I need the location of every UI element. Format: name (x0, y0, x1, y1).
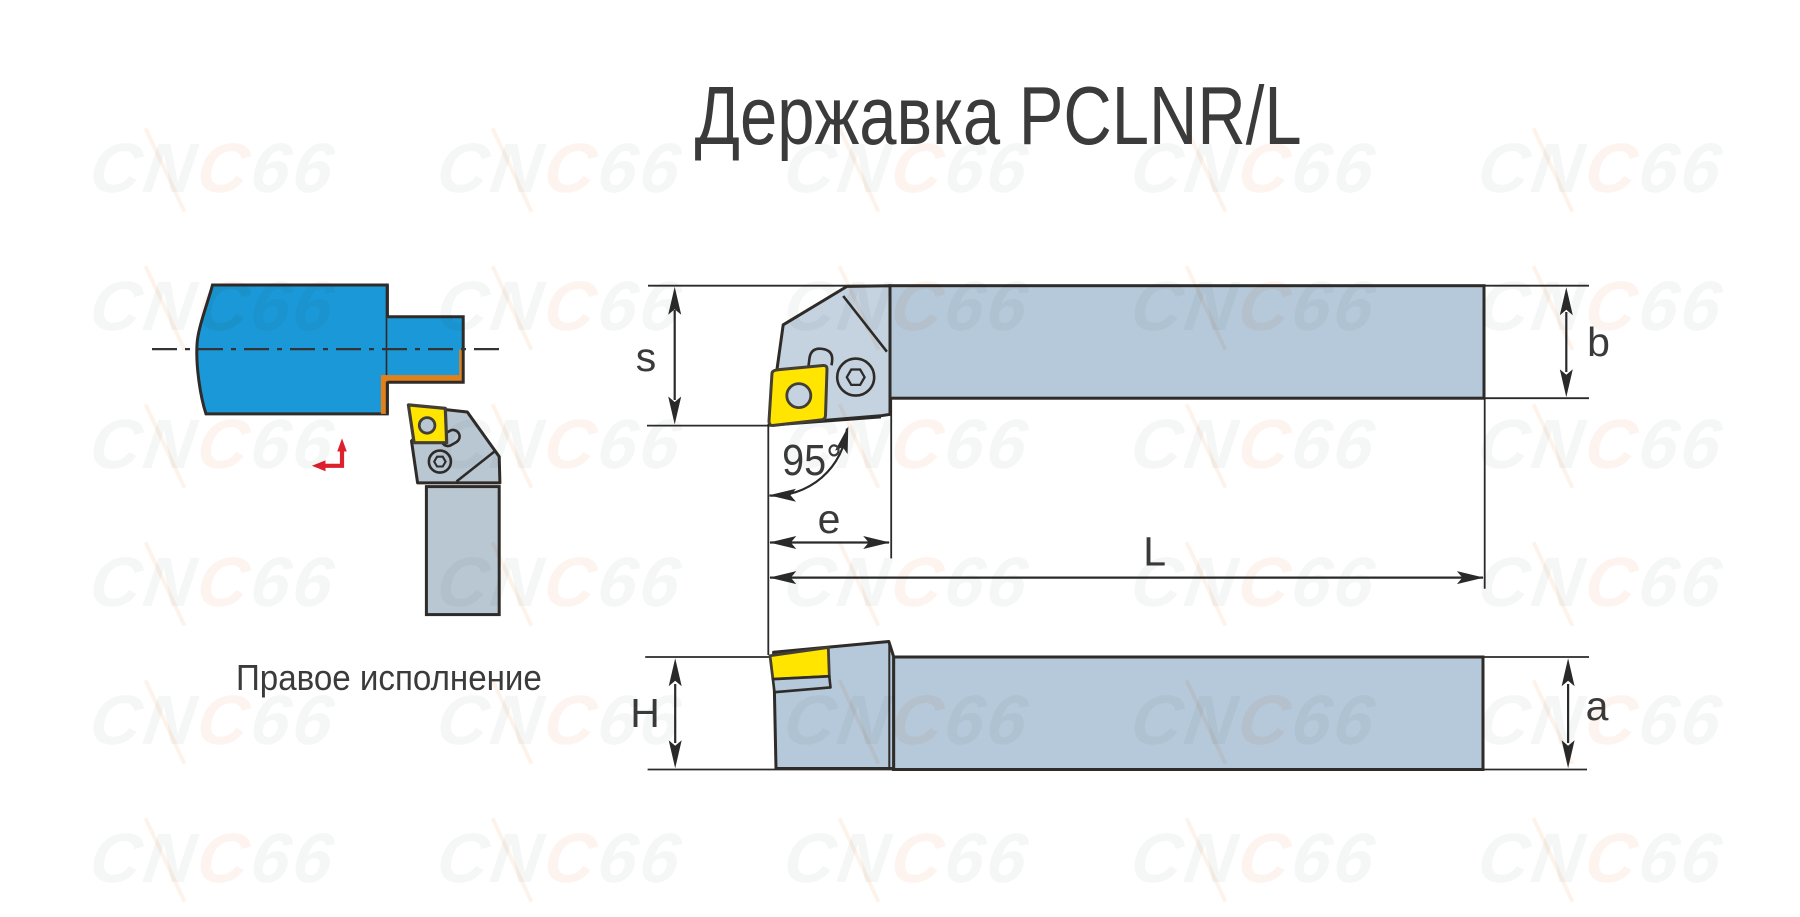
svg-text:H: H (630, 690, 660, 736)
svg-text:a: a (1586, 683, 1609, 729)
svg-text:e: e (818, 496, 841, 542)
svg-text:s: s (636, 334, 657, 380)
svg-text:95°: 95° (782, 435, 842, 484)
svg-text:b: b (1587, 319, 1610, 365)
svg-text:L: L (1143, 529, 1166, 575)
